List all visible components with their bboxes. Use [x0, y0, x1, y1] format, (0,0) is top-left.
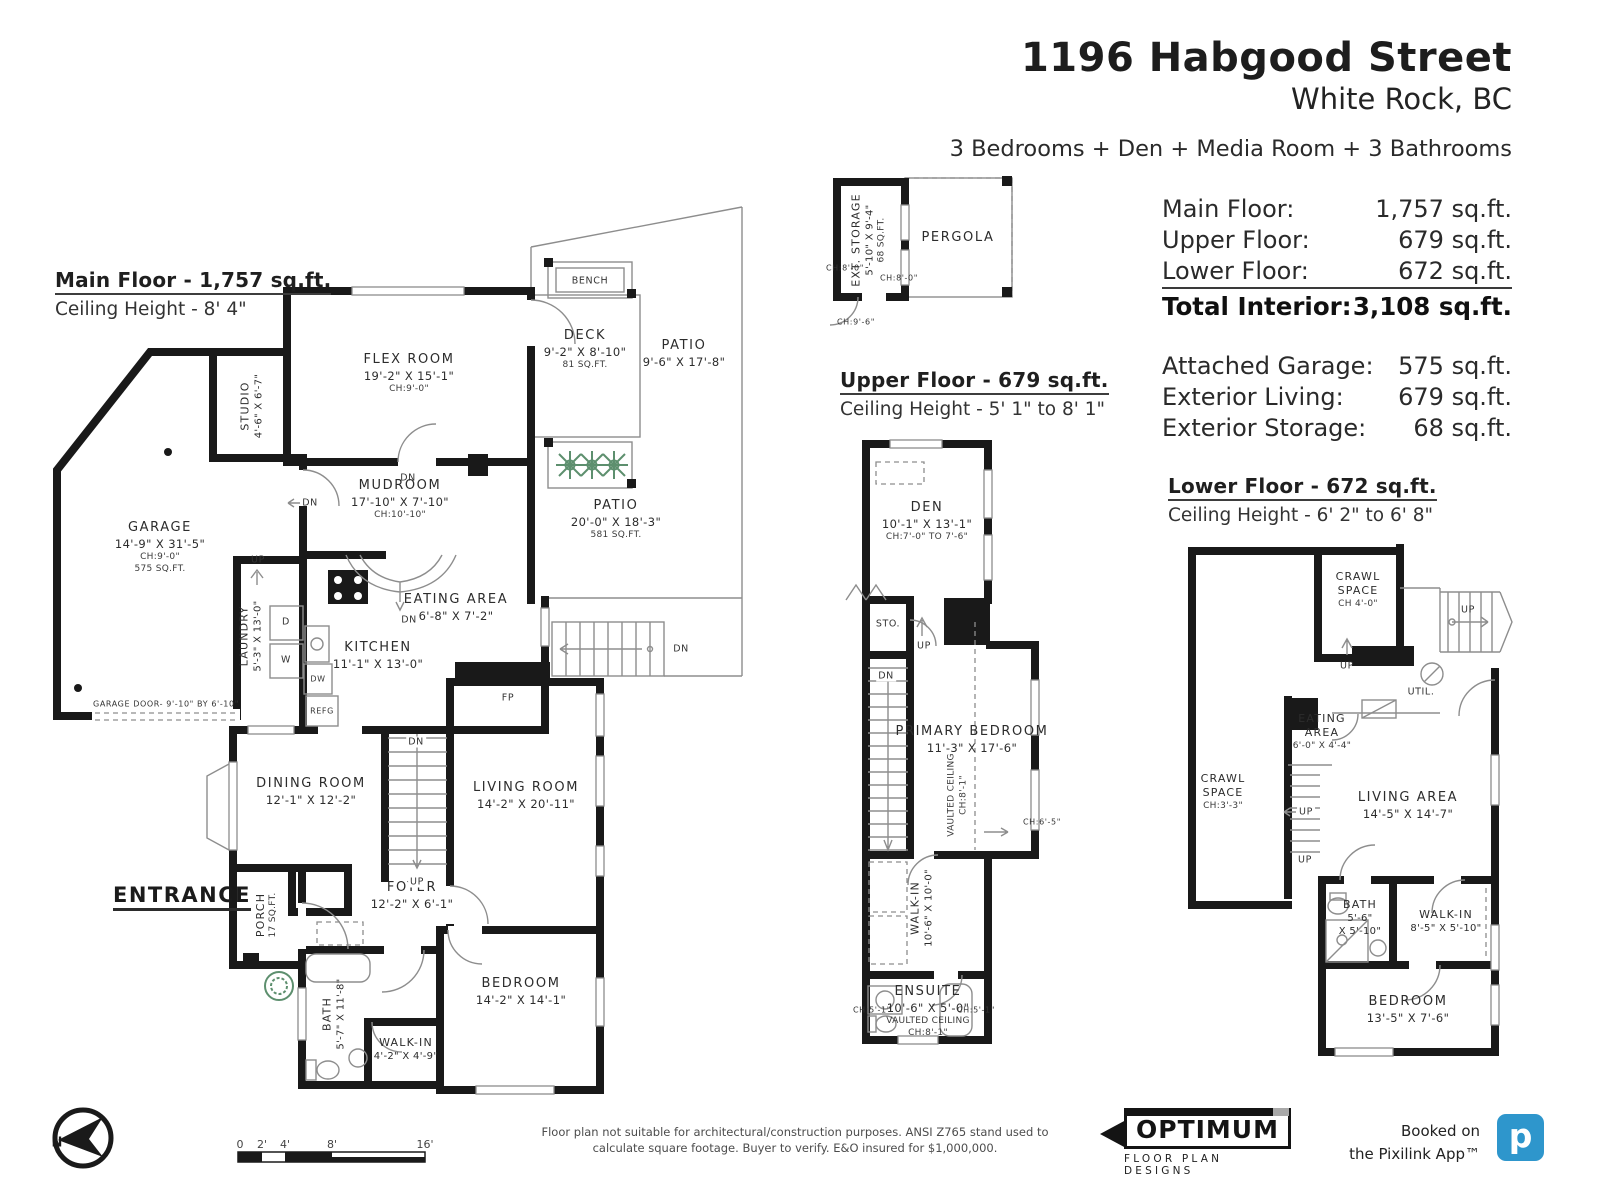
table-row: Upper Floor: 679 sq.ft.: [1162, 225, 1512, 256]
scale-bar: [238, 1152, 425, 1162]
room-label-laundry: LAUNDRY 5'-3" X 13'-0": [237, 600, 264, 671]
ch-label: CH:5'-1": [853, 1006, 891, 1015]
room-label-garage: GARAGE 14'-9" X 31'-5" CH:9'-0" 575 SQ.F…: [115, 520, 205, 575]
row-label: Upper Floor:: [1162, 225, 1310, 256]
ch-label: CH:8'-0": [880, 274, 918, 283]
room-label-den: DEN 10'-1" X 13'-1" CH:7'-0" TO 7'-6": [882, 500, 972, 544]
room-label-lower-bath: BATH 5'-6" X 5'-10": [1339, 898, 1381, 938]
dn-label: DN: [406, 737, 426, 748]
up-label: UP: [1297, 807, 1315, 818]
bench-label: BENCH: [572, 276, 608, 287]
eraser-icon: [1273, 1108, 1289, 1116]
pixilink-app-icon: p: [1497, 1114, 1544, 1161]
room-label-mudroom: MUDROOM 17'-10" X 7'-10" CH:10'-10": [351, 478, 449, 522]
dn-label: DN: [400, 473, 416, 484]
row-value: 679 sq.ft.: [1398, 225, 1512, 256]
room-label-deck: DECK 9'-2" X 8'-10" 81 SQ.FT.: [544, 328, 627, 372]
room-label-kitchen: KITCHEN 11'-1" X 13'-0": [333, 640, 423, 672]
room-label-studio: STUDIO 4'-6" X 6'-7": [238, 374, 265, 438]
room-label-eating-area: EATING AREA 6'-8" X 7'-2": [404, 592, 508, 624]
room-label-lower-eating: EATING AREA 6'-0" X 4'-4": [1287, 712, 1357, 752]
room-label-lower-walkin: WALK-IN 8'-5" X 5'-10": [1410, 908, 1481, 935]
north-label: N: [52, 1136, 63, 1151]
room-label-primary-bedroom: PRIMARY BEDROOM 11'-3" X 17'-6": [896, 724, 1049, 756]
upper-floor-heading: Upper Floor - 679 sq.ft. Ceiling Height …: [840, 368, 1109, 420]
room-label-dining: DINING ROOM 12'-1" X 12'-2": [256, 776, 366, 808]
optimum-logo: OPTIMUM FLOOR PLAN DESIGNS: [1100, 1108, 1280, 1177]
compass-icon: [55, 1110, 111, 1166]
dn-label: DN: [302, 498, 318, 509]
room-label-walkin: WALK-IN 4'-2" X 4'-9": [374, 1036, 438, 1063]
ch-label: CH:9'-6": [837, 318, 875, 327]
up-label: UP: [408, 877, 426, 888]
room-label-pergola: PERGOLA: [921, 230, 994, 247]
up-label: UP: [1296, 855, 1314, 866]
pixilink-booked-text: Booked on the Pixilink App™: [1320, 1120, 1480, 1165]
main-floor-heading: Main Floor - 1,757 sq.ft. Ceiling Height…: [55, 268, 331, 320]
row-label: Attached Garage:: [1162, 351, 1374, 382]
table-row: Lower Floor: 672 sq.ft.: [1162, 256, 1512, 289]
row-value: 1,757 sq.ft.: [1375, 194, 1512, 225]
up-label: UP: [1461, 605, 1475, 616]
room-label-lower-living: LIVING AREA 14'-5" X 14'-7": [1358, 790, 1458, 822]
room-label-upper-walkin: WALK-IN 10'-6" X 10'-0": [908, 869, 935, 947]
fireplace-label: FP: [502, 693, 514, 704]
table-row: Main Floor: 1,757 sq.ft.: [1162, 194, 1512, 225]
room-label-lower-bedroom: BEDROOM 13'-5" X 7'-6": [1367, 994, 1450, 1026]
dn-label: DN: [401, 615, 417, 626]
room-label-porch: PORCH 17 SQ.FT.: [254, 893, 280, 938]
storage-label: STO.: [876, 619, 900, 630]
plant-icon: [600, 451, 628, 479]
disclaimer-text: Floor plan not suitable for architectura…: [515, 1124, 1075, 1156]
table-row: Exterior Storage: 68 sq.ft.: [1162, 413, 1512, 444]
floor-plan-page: 1196 Habgood Street White Rock, BC 3 Bed…: [0, 0, 1600, 1200]
room-label-patio-lower: PATIO 20'-0" X 18'-3" 581 SQ.FT.: [571, 498, 661, 542]
row-value: 575 sq.ft.: [1398, 351, 1512, 382]
up-label: UP: [251, 555, 265, 566]
up-label: UP: [917, 641, 931, 652]
up-label: UP: [1340, 661, 1354, 672]
property-summary: 3 Bedrooms + Den + Media Room + 3 Bathro…: [950, 136, 1512, 162]
property-header: 1196 Habgood Street White Rock, BC: [1021, 36, 1512, 116]
row-value: 672 sq.ft.: [1398, 256, 1512, 287]
row-label: Lower Floor:: [1162, 256, 1309, 287]
pencil-icon: [1100, 1120, 1126, 1148]
room-label-crawl-upper: CRAWL SPACE CH 4'-0": [1316, 570, 1400, 610]
row-value: 3,108 sq.ft.: [1353, 291, 1512, 322]
vaulted-ceiling-label: VAULTED CEILING CH:8'-1": [946, 753, 969, 837]
dishwasher-label: DW: [310, 675, 325, 684]
fridge-label: REFG: [310, 707, 334, 716]
room-label-bedroom: BEDROOM 14'-2" X 14'-1": [476, 976, 566, 1008]
scale-bar-labels: 0 2' 4' 8' 16': [238, 1138, 426, 1150]
dryer-label: D: [282, 617, 290, 628]
entrance-label: ENTRANCE: [113, 883, 251, 911]
row-value: 68 sq.ft.: [1413, 413, 1512, 444]
row-label: Exterior Living:: [1162, 382, 1344, 413]
room-label-patio-upper: PATIO 9'-6" X 17'-8": [643, 338, 726, 370]
ch-label: CH:6'-5": [1023, 818, 1061, 827]
row-value: 679 sq.ft.: [1398, 382, 1512, 413]
room-label-bath: BATH 5'-7" X 11'-8": [320, 978, 347, 1049]
ch-label: CH:5'-1": [957, 1006, 995, 1015]
garage-door-label: GARAGE DOOR- 9'-10" BY 6'-10": [93, 700, 239, 709]
dn-label: DN: [876, 671, 896, 682]
property-address: 1196 Habgood Street: [1021, 36, 1512, 80]
room-label-flex: FLEX ROOM 19'-2" X 15'-1" CH:9'-0": [363, 352, 454, 396]
area-summary-table: Main Floor: 1,757 sq.ft. Upper Floor: 67…: [1162, 194, 1512, 444]
lower-floor-heading: Lower Floor - 672 sq.ft. Ceiling Height …: [1168, 474, 1437, 526]
table-row: Attached Garage: 575 sq.ft.: [1162, 351, 1512, 382]
wreath-icon: [265, 972, 293, 1000]
room-label-crawl-left: CRAWL SPACE CH:3'-3": [1181, 772, 1265, 812]
property-city: White Rock, BC: [1021, 82, 1512, 116]
table-row: Exterior Living: 679 sq.ft.: [1162, 382, 1512, 413]
row-label: Exterior Storage:: [1162, 413, 1366, 444]
room-label-living: LIVING ROOM 14'-2" X 20'-11": [473, 780, 579, 812]
dn-label: DN: [673, 644, 689, 655]
row-label: Total Interior:: [1162, 291, 1352, 322]
table-row-total: Total Interior: 3,108 sq.ft.: [1162, 291, 1512, 322]
washer-label: W: [281, 655, 291, 666]
row-label: Main Floor:: [1162, 194, 1294, 225]
utility-label: UTIL.: [1408, 687, 1435, 698]
ch-label: CH:8'-0": [826, 264, 864, 273]
